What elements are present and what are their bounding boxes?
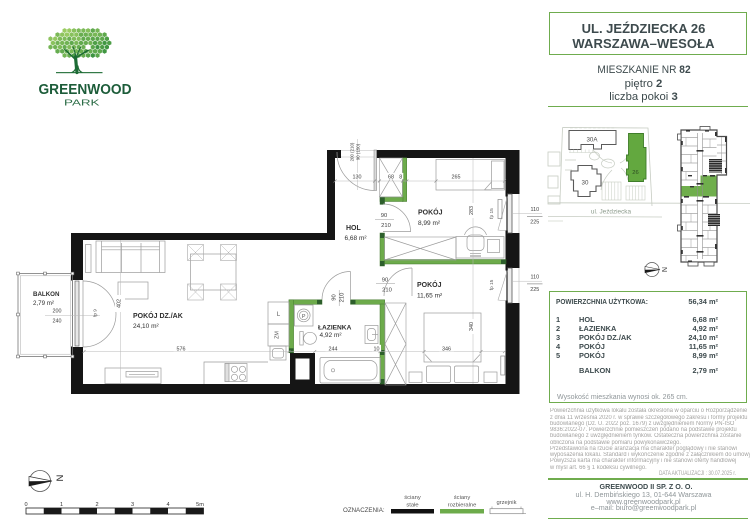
- svg-text:346: 346: [442, 346, 451, 352]
- svg-text:4: 4: [166, 502, 169, 508]
- svg-text:1: 1: [60, 502, 63, 508]
- svg-text:8: 8: [399, 175, 402, 181]
- svg-text:HOL: HOL: [346, 225, 362, 232]
- svg-text:576: 576: [177, 346, 186, 352]
- svg-text:10: 10: [374, 346, 380, 352]
- svg-text:200: 200: [53, 309, 62, 315]
- svg-text:fp 15: fp 15: [489, 279, 495, 290]
- svg-text:110: 110: [531, 207, 540, 213]
- svg-text:244: 244: [329, 346, 338, 352]
- svg-text:fp 9: fp 9: [93, 309, 98, 317]
- svg-text:225: 225: [530, 287, 539, 293]
- svg-text:68: 68: [388, 175, 394, 181]
- svg-text:26: 26: [632, 170, 638, 176]
- svg-text:402: 402: [117, 299, 123, 308]
- svg-text:210: 210: [381, 223, 391, 229]
- svg-text:90: 90: [381, 213, 387, 219]
- svg-text:3: 3: [131, 502, 134, 508]
- svg-text:30: 30: [582, 180, 589, 187]
- svg-text:200 (210): 200 (210): [349, 142, 354, 161]
- svg-text:90: 90: [382, 278, 388, 284]
- svg-text:BALKON: BALKON: [33, 291, 60, 298]
- svg-text:rozbieralne: rozbieralne: [448, 503, 477, 509]
- svg-text:0: 0: [24, 502, 27, 508]
- svg-text:ściany: ściany: [404, 495, 421, 501]
- svg-text:ŁAZIENKA: ŁAZIENKA: [318, 325, 352, 332]
- svg-text:2,79 m²: 2,79 m²: [33, 300, 54, 307]
- svg-text:265: 265: [452, 175, 461, 181]
- svg-text:ul. Jeździecka: ul. Jeździecka: [591, 209, 632, 216]
- svg-text:OZNACZENIA:: OZNACZENIA:: [343, 507, 385, 514]
- svg-text:240: 240: [53, 319, 62, 325]
- svg-text:N: N: [660, 267, 667, 272]
- svg-text:225: 225: [530, 220, 539, 226]
- svg-text:90: 90: [332, 294, 338, 300]
- svg-text:340: 340: [469, 322, 475, 331]
- svg-text:90 (150): 90 (150): [356, 143, 361, 160]
- svg-text:POKÓJ: POKÓJ: [418, 208, 443, 217]
- svg-text:POKÓJ DZ./AK: POKÓJ DZ./AK: [133, 311, 183, 320]
- svg-text:grzejnik: grzejnik: [497, 500, 517, 506]
- svg-text:11,65 m²: 11,65 m²: [417, 292, 443, 299]
- svg-text:stałe: stałe: [406, 503, 418, 509]
- svg-text:fp 15: fp 15: [489, 208, 495, 219]
- svg-text:2: 2: [95, 502, 98, 508]
- svg-text:283: 283: [469, 206, 475, 215]
- svg-text:210: 210: [340, 293, 346, 303]
- svg-text:4,92 m²: 4,92 m²: [320, 332, 343, 339]
- svg-text:POKÓJ: POKÓJ: [417, 280, 442, 289]
- svg-text:110: 110: [531, 275, 540, 281]
- svg-text:24,10 m²: 24,10 m²: [133, 323, 159, 330]
- svg-text:8,99 m²: 8,99 m²: [418, 220, 441, 227]
- svg-text:130: 130: [353, 175, 362, 181]
- svg-text:ZM: ZM: [275, 331, 281, 339]
- svg-text:30A: 30A: [586, 137, 598, 144]
- svg-text:6,68 m²: 6,68 m²: [345, 235, 368, 242]
- svg-text:PARK: PARK: [64, 98, 100, 108]
- svg-text:N: N: [54, 475, 65, 482]
- svg-text:ściany: ściany: [454, 495, 471, 501]
- svg-text:5m: 5m: [196, 502, 204, 508]
- svg-text:L: L: [277, 312, 281, 318]
- svg-text:210: 210: [382, 288, 392, 294]
- svg-text:GREENWOOD: GREENWOOD: [39, 82, 132, 98]
- svg-text:P: P: [302, 314, 306, 320]
